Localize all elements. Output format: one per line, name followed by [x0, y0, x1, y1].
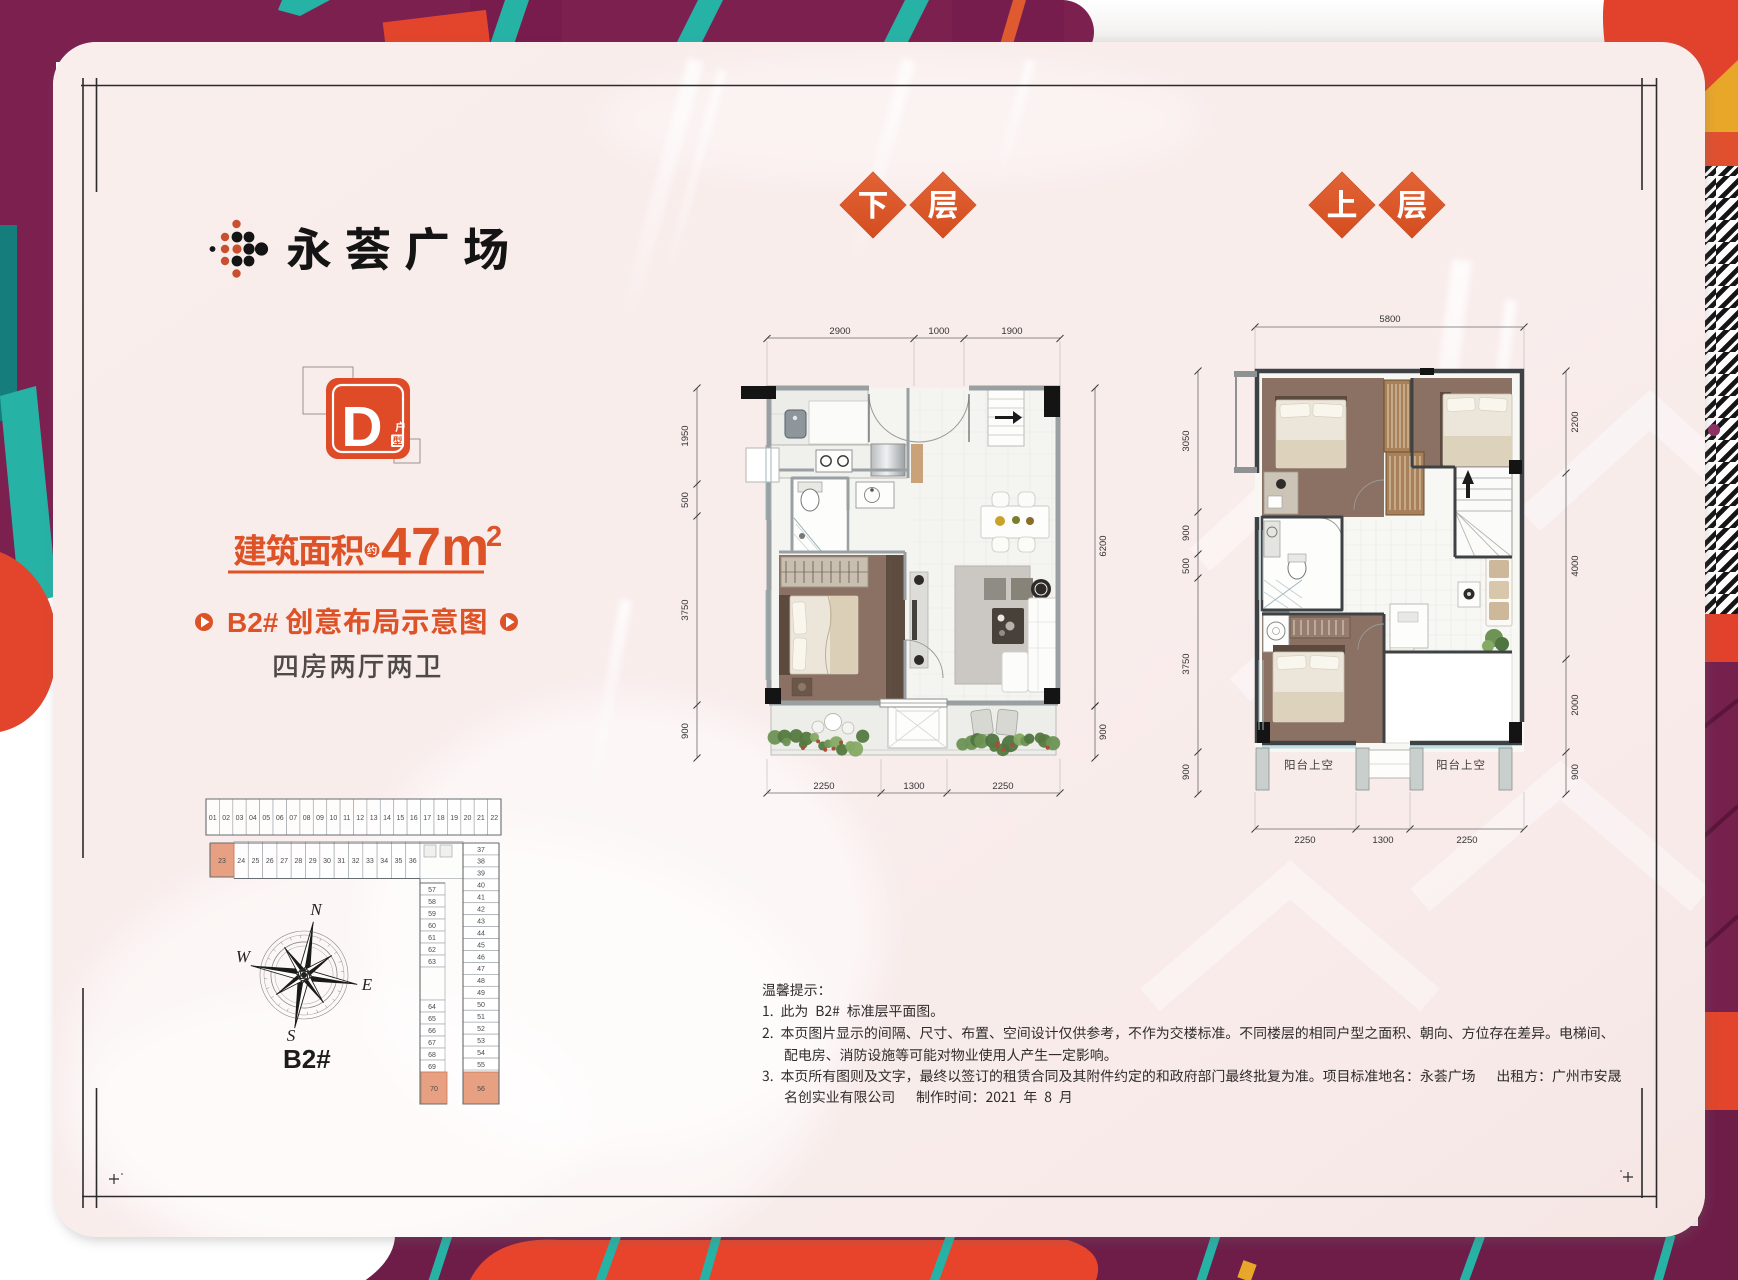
svg-text:37: 37	[477, 847, 485, 854]
svg-text:57: 57	[428, 887, 436, 894]
svg-text:5800: 5800	[1379, 314, 1400, 325]
svg-text:58: 58	[428, 899, 436, 906]
svg-text:53: 53	[477, 1038, 485, 1045]
svg-text:70: 70	[430, 1086, 438, 1093]
svg-text:32: 32	[352, 858, 360, 865]
svg-text:16: 16	[410, 815, 418, 822]
svg-text:E: E	[361, 975, 373, 994]
svg-text:27: 27	[280, 858, 288, 865]
svg-text:47m: 47m	[381, 517, 489, 577]
svg-text:55: 55	[477, 1062, 485, 1069]
svg-text:66: 66	[428, 1028, 436, 1035]
svg-text:05: 05	[262, 815, 270, 822]
svg-text:68: 68	[428, 1052, 436, 1059]
svg-text:54: 54	[477, 1050, 485, 1057]
svg-text:63: 63	[428, 959, 436, 966]
svg-text:09: 09	[316, 815, 324, 822]
svg-text:21: 21	[477, 815, 485, 822]
svg-text:41: 41	[477, 895, 485, 902]
svg-text:15: 15	[397, 815, 405, 822]
svg-text:24: 24	[237, 858, 245, 865]
svg-text:2900: 2900	[829, 326, 850, 337]
svg-text:1900: 1900	[1001, 326, 1022, 337]
svg-text:14: 14	[383, 815, 391, 822]
svg-text:61: 61	[428, 935, 436, 942]
svg-text:39: 39	[477, 871, 485, 878]
svg-text:07: 07	[289, 815, 297, 822]
svg-text:35: 35	[395, 858, 403, 865]
svg-text:62: 62	[428, 947, 436, 954]
svg-text:33: 33	[366, 858, 374, 865]
svg-text:43: 43	[477, 919, 485, 926]
svg-text:45: 45	[477, 942, 485, 949]
svg-text:12: 12	[356, 815, 364, 822]
svg-text:51: 51	[477, 1014, 485, 1021]
svg-text:2250: 2250	[992, 781, 1013, 792]
svg-text:47: 47	[477, 966, 485, 973]
svg-text:18: 18	[437, 815, 445, 822]
svg-text:3050: 3050	[1181, 430, 1192, 451]
svg-text:48: 48	[477, 978, 485, 985]
svg-text:2250: 2250	[1456, 835, 1477, 846]
svg-text:2200: 2200	[1570, 411, 1581, 432]
svg-text:22: 22	[490, 815, 498, 822]
svg-text:26: 26	[266, 858, 274, 865]
svg-text:6200: 6200	[1098, 535, 1109, 556]
svg-text:02: 02	[222, 815, 230, 822]
svg-text:3750: 3750	[680, 599, 691, 620]
svg-text:65: 65	[428, 1016, 436, 1023]
svg-text:1300: 1300	[1372, 835, 1393, 846]
svg-text:13: 13	[370, 815, 378, 822]
svg-text:500: 500	[1181, 558, 1192, 574]
svg-text:W: W	[236, 947, 252, 966]
svg-text:46: 46	[477, 954, 485, 961]
svg-text:42: 42	[477, 907, 485, 914]
svg-text:10: 10	[330, 815, 338, 822]
svg-text:29: 29	[309, 858, 317, 865]
svg-text:52: 52	[477, 1026, 485, 1033]
svg-text:30: 30	[323, 858, 331, 865]
svg-text:2250: 2250	[813, 781, 834, 792]
svg-text:25: 25	[252, 858, 260, 865]
svg-text:19: 19	[450, 815, 458, 822]
svg-text:1000: 1000	[928, 326, 949, 337]
svg-text:06: 06	[276, 815, 284, 822]
svg-text:23: 23	[218, 858, 226, 865]
svg-text:900: 900	[680, 723, 691, 739]
svg-text:44: 44	[477, 930, 485, 937]
svg-text:40: 40	[477, 883, 485, 890]
svg-text:D: D	[341, 395, 382, 459]
svg-text:64: 64	[428, 1004, 436, 1011]
svg-text:11: 11	[343, 815, 350, 822]
svg-text:28: 28	[295, 858, 303, 865]
svg-text:1300: 1300	[903, 781, 924, 792]
svg-text:4000: 4000	[1570, 555, 1581, 576]
svg-text:3750: 3750	[1181, 653, 1192, 674]
svg-text:20: 20	[464, 815, 472, 822]
svg-text:03: 03	[236, 815, 244, 822]
svg-text:17: 17	[423, 815, 431, 822]
svg-text:50: 50	[477, 1002, 485, 1009]
svg-text:900: 900	[1098, 724, 1109, 740]
svg-text:56: 56	[477, 1086, 485, 1093]
svg-text:2250: 2250	[1294, 835, 1315, 846]
svg-text:900: 900	[1570, 764, 1581, 780]
svg-text:31: 31	[337, 858, 345, 865]
svg-text:36: 36	[409, 858, 417, 865]
svg-text:34: 34	[380, 858, 388, 865]
svg-text:N: N	[309, 900, 323, 919]
svg-text:900: 900	[1181, 764, 1192, 780]
svg-text:B2#: B2#	[283, 1044, 331, 1074]
svg-text:01: 01	[209, 815, 217, 822]
svg-text:04: 04	[249, 815, 257, 822]
svg-text:69: 69	[428, 1064, 436, 1071]
svg-text:900: 900	[1181, 525, 1192, 541]
svg-text:S: S	[287, 1026, 296, 1045]
svg-text:49: 49	[477, 990, 485, 997]
svg-text:2: 2	[486, 521, 502, 553]
svg-text:38: 38	[477, 859, 485, 866]
svg-text:B2#: B2#	[227, 607, 279, 638]
svg-text:59: 59	[428, 911, 436, 918]
svg-text:500: 500	[680, 492, 691, 508]
svg-text:67: 67	[428, 1040, 436, 1047]
svg-text:08: 08	[303, 815, 311, 822]
svg-text:60: 60	[428, 923, 436, 930]
svg-text:1950: 1950	[680, 425, 691, 446]
svg-text:2000: 2000	[1570, 694, 1581, 715]
